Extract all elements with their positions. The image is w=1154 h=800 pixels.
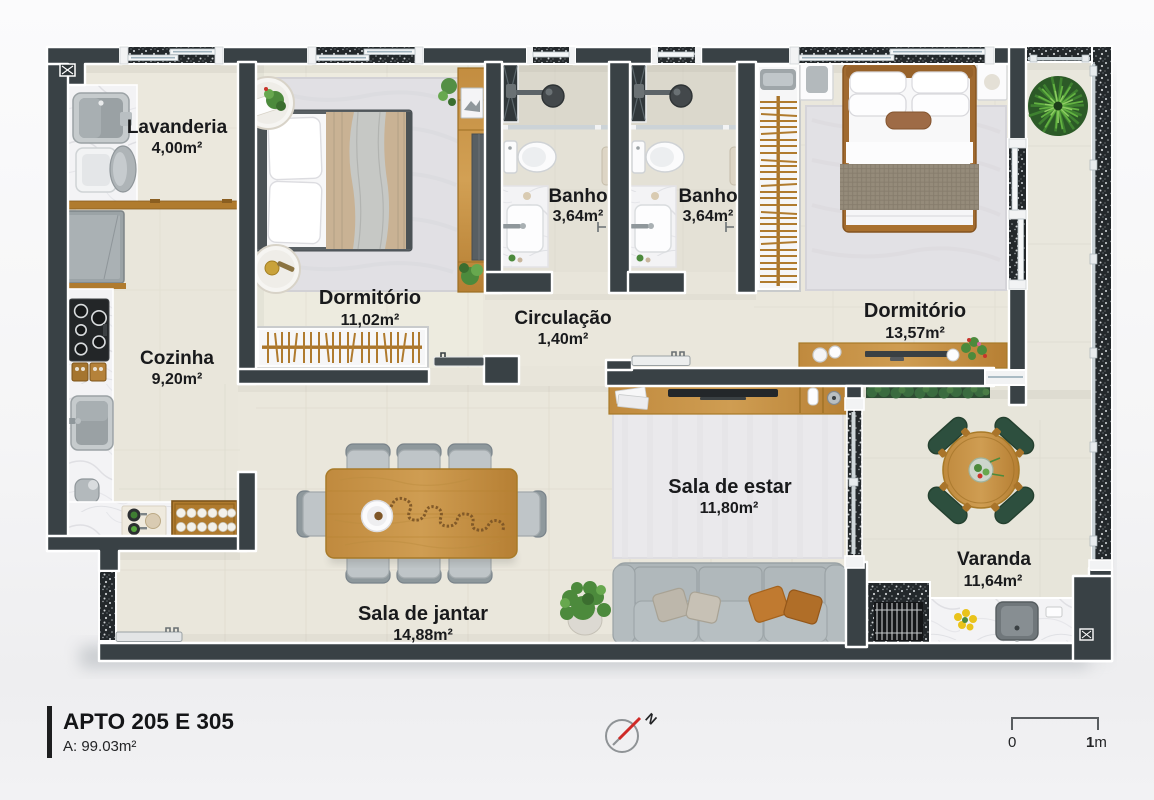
svg-text:3,64m²: 3,64m² — [683, 208, 734, 225]
svg-text:0: 0 — [1008, 734, 1016, 751]
svg-text:APTO 205 E 305: APTO 205 E 305 — [63, 709, 234, 734]
svg-text:1m: 1m — [1086, 734, 1107, 751]
svg-text:13,57m²: 13,57m² — [885, 325, 945, 342]
svg-text:A: 99.03m²: A: 99.03m² — [63, 738, 136, 755]
svg-text:Varanda: Varanda — [957, 549, 1031, 570]
svg-text:Cozinha: Cozinha — [140, 348, 214, 369]
svg-text:Banho: Banho — [678, 186, 737, 207]
svg-text:14,88m²: 14,88m² — [393, 627, 453, 644]
svg-text:Dormitório: Dormitório — [319, 287, 421, 309]
svg-text:11,64m²: 11,64m² — [964, 573, 1023, 590]
svg-text:9,20m²: 9,20m² — [152, 371, 203, 388]
svg-text:Dormitório: Dormitório — [864, 300, 966, 322]
svg-text:11,80m²: 11,80m² — [700, 500, 759, 517]
svg-text:Sala de jantar: Sala de jantar — [358, 603, 488, 625]
svg-text:Circulação: Circulação — [514, 308, 611, 329]
svg-text:3,64m²: 3,64m² — [553, 208, 604, 225]
svg-text:4,00m²: 4,00m² — [152, 140, 203, 157]
svg-text:11,02m²: 11,02m² — [341, 312, 400, 329]
svg-text:Sala de estar: Sala de estar — [668, 476, 792, 498]
svg-text:1,40m²: 1,40m² — [538, 331, 589, 348]
svg-text:Banho: Banho — [548, 186, 607, 207]
svg-text:Lavanderia: Lavanderia — [127, 117, 228, 138]
